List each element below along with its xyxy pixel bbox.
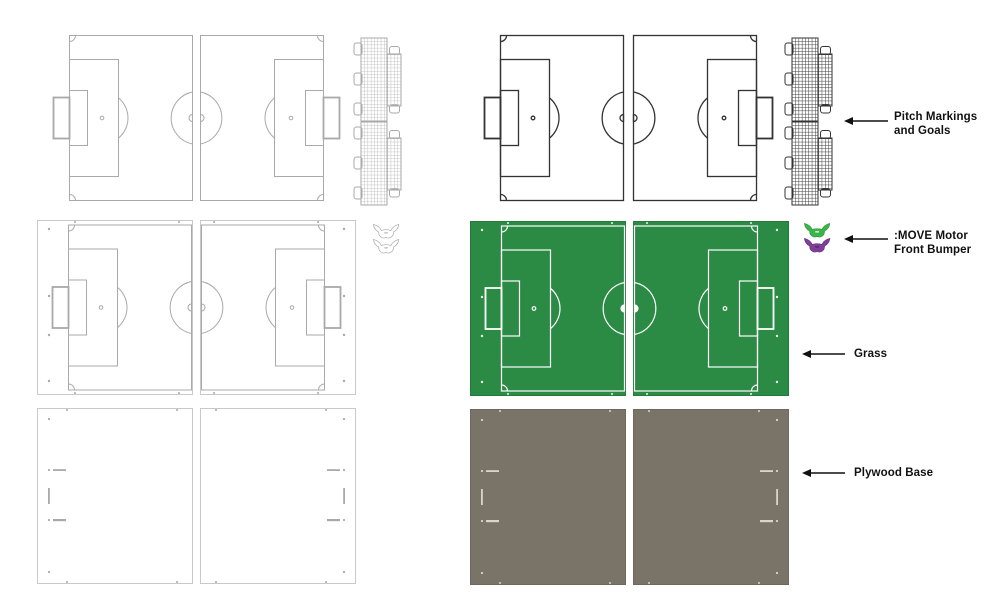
bumper-outline-bottom [373,239,398,253]
football-pitch-layer-diagram: Pitch Markings and Goals :MOVE Motor Fro… [0,0,1000,609]
pitch-outline-right-half [201,36,340,201]
label-pitch-markings: Pitch Markings and Goals [894,110,977,138]
label-line: and Goals [894,124,977,138]
goal-net-outline-bottom [354,122,401,205]
label-line: Pitch Markings [894,110,977,124]
label-grass: Grass [854,347,887,361]
grass-right-panel [634,222,789,396]
label-move-bumper: :MOVE Motor Front Bumper [894,229,971,257]
plywood-right-panel [634,410,789,585]
label-line: Plywood Base [854,466,933,480]
arrow-move-bumper [844,235,888,243]
goal-net-top [785,38,832,121]
goal-net-outline-top [354,38,401,121]
plywood-outline-right-panel [201,409,356,584]
grass-outline-right-panel [201,221,356,395]
bumper-purple [804,238,829,252]
bumper-outline-top [373,224,398,238]
bumper-green [804,223,829,237]
pitch-outline-left-half [54,36,193,201]
label-line: Grass [854,347,887,361]
plywood-left-panel [471,410,626,585]
label-line: :MOVE Motor [894,229,971,243]
arrow-plywood [802,469,845,477]
pitch-markings-left-half [485,36,624,201]
diagram-canvas [0,0,1000,609]
arrow-pitch-markings [844,117,888,125]
grass-outline-left-panel [38,221,193,395]
label-line: Front Bumper [894,243,971,257]
goal-net-bottom [785,122,832,205]
label-plywood: Plywood Base [854,466,933,480]
pitch-markings-right-half [634,36,773,201]
grass-left-panel [471,222,626,396]
plywood-outline-left-panel [38,409,193,584]
arrow-grass [802,350,845,358]
